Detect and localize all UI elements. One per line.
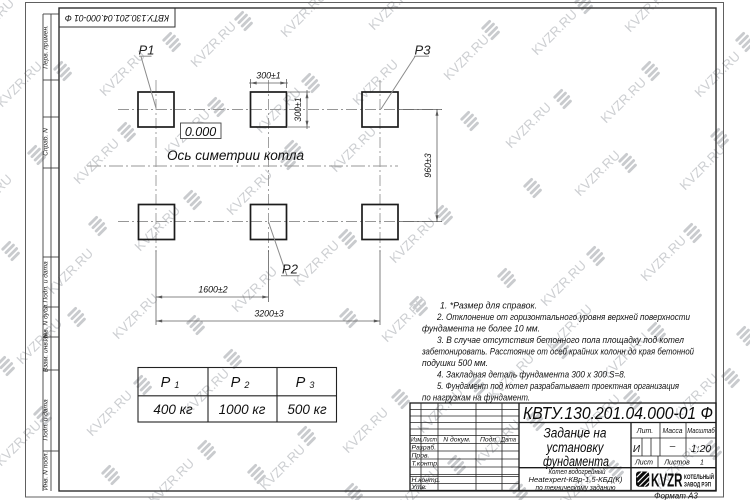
svg-text:KVZR.RU: KVZR.RU	[538, 258, 590, 310]
svg-text:Подп. и дата: Подп. и дата	[42, 399, 50, 441]
svg-text:Р2: Р2	[282, 262, 299, 277]
svg-text:Инв. N подл.: Инв. N подл.	[42, 452, 50, 491]
svg-text:1:20: 1:20	[691, 443, 712, 455]
svg-text:Подп.: Подп.	[480, 436, 498, 444]
svg-text:по техническому заданию: по техническому заданию	[536, 483, 616, 492]
svg-text:0.000: 0.000	[185, 125, 216, 139]
svg-text:KVZR.RU: KVZR.RU	[0, 0, 17, 47]
svg-text:KVZR.RU: KVZR.RU	[257, 442, 309, 494]
svg-text:500 кг: 500 кг	[287, 402, 327, 417]
svg-text:300±1: 300±1	[293, 97, 303, 122]
svg-text:Изм.Лист: Изм.Лист	[411, 437, 437, 444]
svg-text:KVZR.RU: KVZR.RU	[350, 57, 402, 109]
svg-text:Перв. примен.: Перв. примен.	[43, 25, 50, 69]
svg-text:Листов: Листов	[663, 460, 690, 467]
svg-text:KVZR.RU: KVZR.RU	[441, 32, 493, 84]
svg-text:KVZR.RU: KVZR.RU	[14, 316, 66, 368]
svg-text:KVZR.RU: KVZR.RU	[291, 238, 343, 290]
svg-text:KVZR.RU: KVZR.RU	[84, 388, 136, 440]
svg-text:400 кг: 400 кг	[153, 402, 193, 417]
svg-text:КОТЕЛЬНЫЙ: КОТЕЛЬНЫЙ	[684, 473, 714, 481]
svg-text:ЗАВОД РЭП: ЗАВОД РЭП	[684, 482, 711, 489]
svg-text:5. Фундамент под котел разраб: 5. Фундамент под котел разрабатывает про…	[437, 381, 679, 391]
svg-text:Пров.: Пров.	[412, 453, 430, 460]
svg-text:KVZR.RU: KVZR.RU	[188, 19, 240, 71]
svg-text:N докум.: N докум.	[443, 436, 471, 444]
svg-text:KVZR.RU: KVZR.RU	[503, 100, 555, 152]
svg-text:Масса: Масса	[663, 428, 683, 435]
svg-text:КВТУ.130.201.04.000-01 Ф: КВТУ.130.201.04.000-01 Ф	[65, 13, 169, 23]
svg-text:KVZR.RU: KVZR.RU	[622, 0, 674, 35]
svg-text:по нагрузкам на фундамент.: по нагрузкам на фундамент.	[422, 393, 530, 403]
svg-text:300±1: 300±1	[256, 71, 281, 81]
svg-text:KVZR.RU: KVZR.RU	[544, 302, 596, 354]
svg-text:Т.контр.: Т.контр.	[412, 461, 440, 468]
svg-text:KVZR.RU: KVZR.RU	[0, 172, 15, 224]
svg-text:Утв.: Утв.	[411, 484, 428, 491]
svg-text:KVZR.RU: KVZR.RU	[146, 456, 198, 500]
svg-text:KVZR.RU: KVZR.RU	[366, 0, 418, 33]
svg-text:Подп. и дата: Подп. и дата	[42, 261, 50, 303]
svg-text:Р 2: Р 2	[231, 375, 250, 391]
svg-text:Взам. инв. N: Взам. инв. N	[43, 334, 50, 373]
svg-text:4. Закладная деталь фундамент: 4. Закладная деталь фундамента 300 x 300…	[437, 370, 626, 380]
svg-text:KVZR.RU: KVZR.RU	[229, 264, 281, 316]
svg-text:KVZR.RU: KVZR.RU	[278, 0, 330, 40]
svg-text:1: 1	[700, 460, 704, 467]
svg-text:Лит.: Лит.	[636, 428, 653, 435]
svg-text:KVZR.RU: KVZR.RU	[529, 7, 581, 59]
svg-text:960±3: 960±3	[423, 153, 433, 178]
svg-text:KVZR.RU: KVZR.RU	[328, 124, 380, 176]
svg-text:Р1: Р1	[139, 43, 155, 58]
svg-text:Ось симетрии котла: Ось симетрии котла	[167, 147, 304, 163]
svg-text:1600±2: 1600±2	[198, 285, 227, 295]
svg-text:подушки 500 мм.: подушки 500 мм.	[422, 358, 488, 368]
svg-text:Р3: Р3	[415, 43, 432, 58]
svg-text:KVZR.RU: KVZR.RU	[110, 291, 162, 343]
svg-text:Разраб.: Разраб.	[412, 444, 437, 452]
svg-text:забетонировать. Расстояние от: забетонировать. Расстояние от осей крайн…	[421, 347, 694, 357]
svg-text:Масштаб: Масштаб	[687, 427, 715, 435]
svg-text:установку: установку	[546, 440, 605, 455]
svg-text:И: И	[633, 444, 641, 455]
svg-text:KVZR.RU: KVZR.RU	[598, 75, 650, 127]
svg-text:KVZR.RU: KVZR.RU	[638, 233, 690, 285]
svg-text:KVZR.RU: KVZR.RU	[0, 59, 45, 111]
svg-text:1000 кг: 1000 кг	[219, 402, 266, 417]
svg-text:Спраб. N: Спраб. N	[42, 128, 50, 156]
svg-text:3200±3: 3200±3	[254, 309, 283, 319]
svg-text:KVZR.RU: KVZR.RU	[71, 136, 123, 188]
svg-text:Формат А3: Формат А3	[654, 492, 698, 500]
svg-text:KVZR.RU: KVZR.RU	[45, 246, 97, 298]
svg-text:–: –	[669, 441, 676, 452]
svg-text:KVZR.RU: KVZR.RU	[224, 167, 276, 219]
svg-text:2. Отклонение от горизонтальн: 2. Отклонение от горизонтального уровня …	[436, 312, 690, 322]
svg-text:Лист: Лист	[634, 460, 653, 467]
svg-text:KVZR: KVZR	[651, 471, 683, 491]
svg-text:KVZR.RU: KVZR.RU	[572, 148, 624, 200]
svg-text:Р 3: Р 3	[296, 375, 315, 391]
svg-text:KVZR.RU: KVZR.RU	[692, 49, 744, 101]
svg-text:KVZR.RU: KVZR.RU	[0, 418, 44, 470]
svg-text:Р 1: Р 1	[161, 375, 180, 391]
svg-text:Н.контр.: Н.контр.	[412, 477, 441, 484]
svg-text:фундамента не более 10 мм.: фундамента не более 10 мм.	[422, 324, 540, 334]
svg-text:3. В случае отсутствия бетонн: 3. В случае отсутствия бетонного пола пл…	[437, 335, 685, 345]
svg-text:Задание на: Задание на	[544, 426, 607, 441]
svg-text:1. *Размер для справок.: 1. *Размер для справок.	[440, 301, 537, 311]
svg-text:Дата: Дата	[500, 437, 516, 444]
svg-text:КВТУ.130.201.04.000-01 Ф: КВТУ.130.201.04.000-01 Ф	[523, 403, 713, 423]
svg-text:KVZR.RU: KVZR.RU	[340, 405, 392, 457]
svg-text:KVZR.RU: KVZR.RU	[677, 142, 729, 194]
